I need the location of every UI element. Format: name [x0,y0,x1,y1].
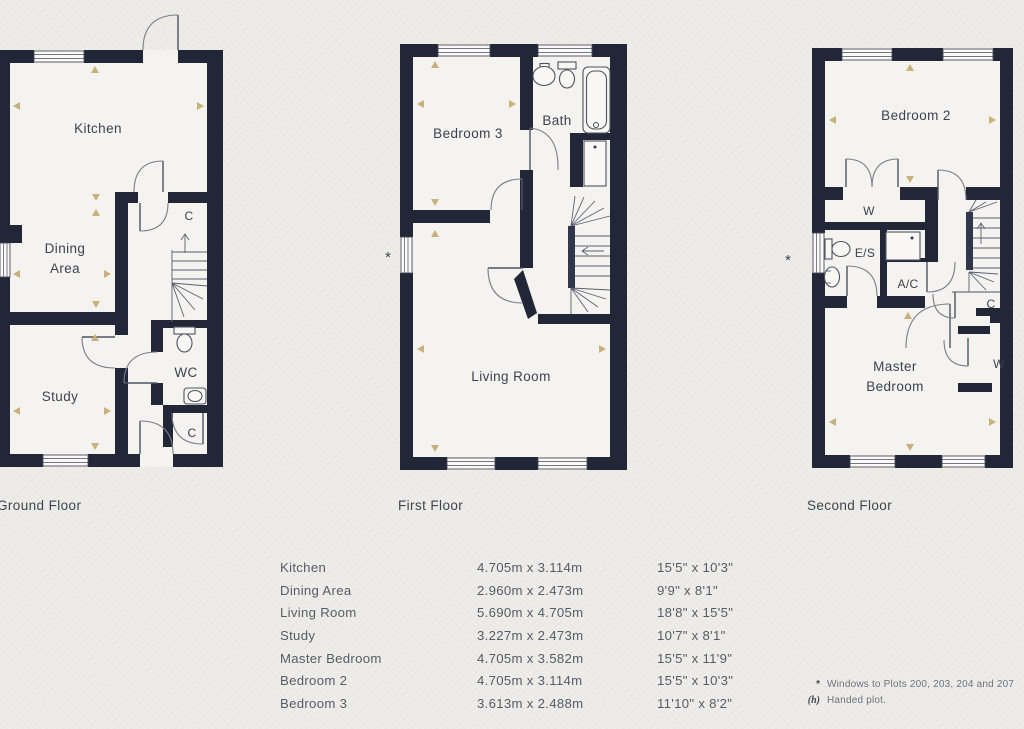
table-row: Study3.227m x 2.473m10'7" x 8'1" [280,624,817,647]
metric-size: 2.960m x 2.473m [477,583,657,598]
room-name: Study [280,628,477,643]
table-row: Dining Area2.960m x 2.473m9'9" x 8'1" [280,579,817,602]
study-window [43,455,88,466]
master-window-2 [942,456,985,467]
footnote-text: Windows to Plots 200, 203, 204 and 207 [827,679,1014,690]
ground-floor-plan: Kitchen Dining Area Study WC C C [0,0,235,495]
room-label-wardrobe-top: W [863,204,875,218]
room-label-cupboard-top: C [185,209,194,223]
room-label-ensuite: E/S [855,246,875,260]
footnote-windows: * Windows to Plots 200, 203, 204 and 207 [793,676,1014,692]
room-label-dining-line1: Dining [45,241,86,256]
window-note-asterisk-second: * [785,252,791,269]
footnotes: * Windows to Plots 200, 203, 204 and 207… [793,676,1014,708]
floorplan-sheet: Kitchen Dining Area Study WC C C [0,0,1024,729]
room-label-bath: Bath [542,113,571,128]
room-name: Bedroom 2 [280,673,477,688]
imperial-size: 9'9" x 8'1" [657,583,817,598]
table-row: Bedroom 24.705m x 3.114m15'5" x 10'3" [280,669,817,692]
ensuite-side-window [813,233,824,273]
bath-toilet [558,62,576,88]
room-label-bedroom3: Bedroom 3 [433,126,503,141]
room-name: Dining Area [280,583,477,598]
room-label-cupboard-second: C [987,297,996,311]
table-row: Bedroom 33.613m x 2.488m11'10" x 8'2" [280,692,817,715]
metric-size: 3.227m x 2.473m [477,628,657,643]
room-name: Living Room [280,605,477,620]
room-label-living-room: Living Room [471,369,550,384]
room-label-master-line2: Bedroom [866,379,924,394]
room-label-airing-cupboard: A/C [898,277,919,291]
metric-size: 4.705m x 3.582m [477,651,657,666]
living-side-window [401,237,412,273]
dimensions-table: Kitchen4.705m x 3.114m15'5" x 10'3" Dini… [280,556,817,715]
bedroom2-window-2 [943,49,993,60]
imperial-size: 10'7" x 8'1" [657,628,817,643]
room-label-wardrobe-bottom: W [993,357,1005,371]
room-label-master-line1: Master [873,359,917,374]
caption-first-floor: First Floor [398,498,463,513]
handed-marker: (h) [793,695,820,706]
airing-cupboard-box [584,141,606,186]
room-label-wc: WC [174,365,197,380]
kitchen-window [34,51,84,62]
caption-second-floor: Second Floor [807,498,892,513]
imperial-size: 18'8" x 15'5" [657,605,817,620]
ensuite-sink [825,267,840,287]
room-name: Master Bedroom [280,651,477,666]
first-floor-plan: Bedroom 3 Bath Living Room * [383,28,633,480]
master-window-1 [850,456,895,467]
room-label-kitchen: Kitchen [74,121,122,136]
asterisk-marker: * [793,679,820,690]
imperial-size: 15'5" x 11'9" [657,651,817,666]
dining-window [0,243,10,277]
bedroom3-window [438,45,490,56]
second-floor-plan: Bedroom 2 W E/S A/C C W Master Bedroom * [783,35,1024,475]
room-label-dining-line2: Area [50,261,80,276]
bathtub [583,67,610,133]
footnote-handed: (h) Handed plot. [793,692,1014,708]
window-note-asterisk-first: * [385,249,391,266]
table-row: Kitchen4.705m x 3.114m15'5" x 10'3" [280,556,817,579]
room-label-study: Study [42,389,79,404]
room-name: Kitchen [280,560,477,575]
room-label-cupboard-bottom: C [188,426,197,440]
metric-size: 4.705m x 3.114m [477,560,657,575]
table-row: Living Room5.690m x 4.705m18'8" x 15'5" [280,601,817,624]
table-row: Master Bedroom4.705m x 3.582m15'5" x 11'… [280,647,817,670]
footnote-text: Handed plot. [827,695,886,706]
wc-sink [184,388,206,404]
shower [886,232,920,260]
metric-size: 5.690m x 4.705m [477,605,657,620]
front-door [143,15,178,50]
metric-size: 3.613m x 2.488m [477,696,657,711]
living-window-2 [538,458,587,469]
bedroom2-window-1 [842,49,892,60]
metric-size: 4.705m x 3.114m [477,673,657,688]
room-label-bedroom2: Bedroom 2 [881,108,951,123]
bath-window [538,45,592,56]
caption-ground-floor: Ground Floor [0,498,81,513]
living-window-1 [447,458,495,469]
room-name: Bedroom 3 [280,696,477,711]
imperial-size: 15'5" x 10'3" [657,560,817,575]
